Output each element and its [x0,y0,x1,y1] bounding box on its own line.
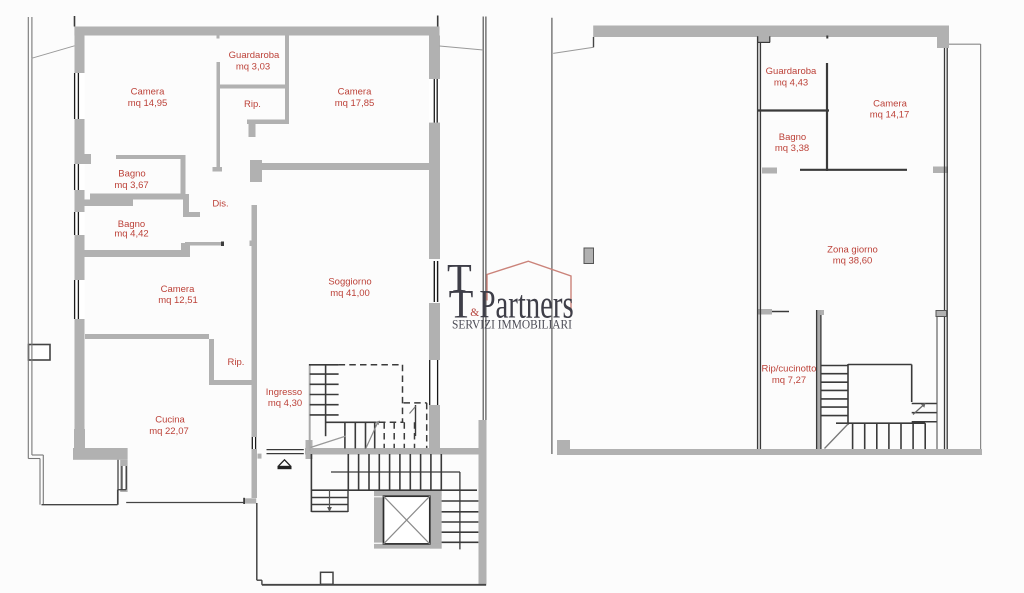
svg-text:Rip/cucinotto: Rip/cucinotto [762,363,817,374]
svg-text:mq 12,51: mq 12,51 [158,295,198,306]
svg-text:mq 4,30: mq 4,30 [268,398,302,409]
svg-text:mq 7,27: mq 7,27 [772,375,806,386]
svg-text:mq 3,38: mq 3,38 [775,143,809,154]
svg-text:mq 17,85: mq 17,85 [335,98,375,109]
svg-text:SERVIZI IMMOBILIARI: SERVIZI IMMOBILIARI [452,316,572,331]
svg-text:mq 14,95: mq 14,95 [128,98,168,109]
svg-text:mq 4,43: mq 4,43 [774,77,808,88]
svg-text:Camera: Camera [873,98,908,109]
svg-text:Camera: Camera [161,284,196,295]
svg-text:Ingresso: Ingresso [266,387,302,398]
svg-text:Guardaroba: Guardaroba [766,66,817,77]
svg-text:mq 3,03: mq 3,03 [236,61,270,72]
svg-text:Rip.: Rip. [244,99,261,110]
svg-text:Cucina: Cucina [155,414,185,425]
svg-text:mq 4,42: mq 4,42 [114,228,148,239]
svg-text:mq 38,60: mq 38,60 [833,255,873,266]
svg-text:Rip.: Rip. [228,357,245,368]
svg-text:Dis.: Dis. [212,198,228,209]
svg-text:Bagno: Bagno [779,132,806,143]
svg-text:Camera: Camera [131,86,166,97]
svg-text:Guardaroba: Guardaroba [229,50,280,61]
svg-text:mq 14,17: mq 14,17 [870,109,910,120]
svg-text:Zona giorno: Zona giorno [827,244,878,255]
svg-text:mq 3,67: mq 3,67 [114,180,148,191]
svg-text:Soggiorno: Soggiorno [328,276,371,287]
svg-text:Camera: Camera [338,86,373,97]
svg-text:Bagno: Bagno [118,168,145,179]
svg-text:mq 41,00: mq 41,00 [330,288,370,299]
svg-text:mq 22,07: mq 22,07 [149,426,189,437]
